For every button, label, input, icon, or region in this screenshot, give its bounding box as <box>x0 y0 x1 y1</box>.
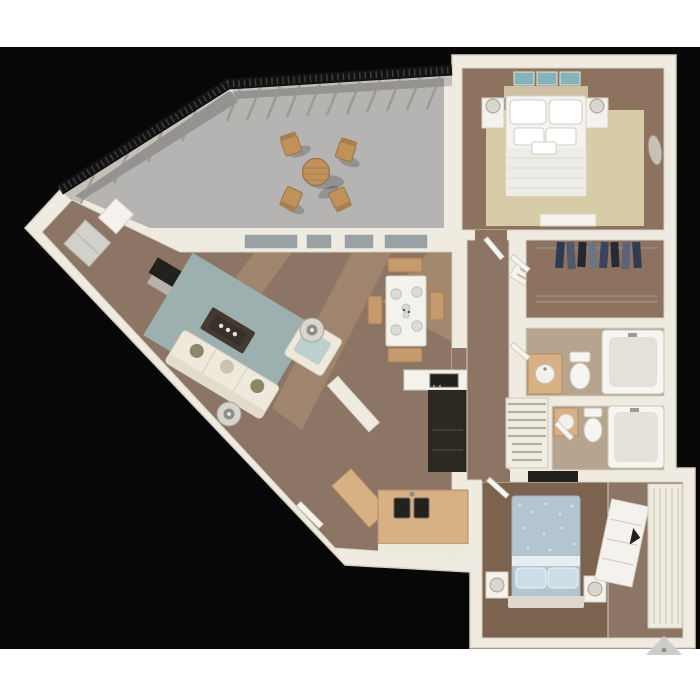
pillow <box>549 100 582 124</box>
pillow <box>510 100 546 124</box>
top-margin <box>0 0 700 47</box>
wardrobe <box>648 484 682 628</box>
walk-in-closet <box>510 240 664 318</box>
kitchen-sink-right <box>414 498 429 518</box>
side-table-lamp <box>300 318 324 342</box>
tub-faucet <box>630 408 639 412</box>
bench <box>540 214 596 226</box>
staircase <box>506 398 548 468</box>
tub-faucet <box>628 333 637 337</box>
bathtub <box>602 330 664 394</box>
table-lamp <box>590 99 604 113</box>
table-lamp <box>588 582 602 596</box>
table-lamp <box>486 99 500 113</box>
glass-pane <box>384 234 428 249</box>
dining-bench <box>388 258 422 272</box>
pillow <box>548 568 578 588</box>
bed-1 <box>506 96 586 196</box>
bedroom1-doorway <box>475 230 507 242</box>
side-table-lamp <box>217 402 241 426</box>
glass-pane <box>306 234 332 249</box>
dining-bench <box>388 348 422 362</box>
hallway-floor <box>467 240 509 480</box>
headboard <box>508 596 584 608</box>
toilet <box>570 352 590 389</box>
faucet <box>410 492 415 497</box>
bathroom-1 <box>510 328 664 396</box>
bathtub <box>608 406 664 468</box>
dining-chair <box>430 292 444 320</box>
vanity-sink <box>536 365 555 384</box>
floor-plan-image <box>0 0 700 700</box>
floor-plan-canvas <box>0 0 700 700</box>
bedroom2-doorway <box>482 470 510 482</box>
tv <box>528 471 578 482</box>
duvet <box>506 148 586 196</box>
dark-cabinet-run <box>428 390 467 472</box>
bedroom-2 <box>482 470 683 638</box>
sheet-fold <box>512 556 580 566</box>
glass-pane <box>344 234 374 249</box>
pillow <box>516 568 546 588</box>
bottom-margin <box>0 649 700 700</box>
glass-pane <box>244 234 298 249</box>
round-patio-table <box>303 159 330 186</box>
folded-blanket <box>532 142 556 154</box>
triangle-dot <box>662 648 667 653</box>
bed-2 <box>508 496 584 608</box>
toilet <box>584 408 602 442</box>
counter-front <box>378 544 468 556</box>
kitchen-sink-left <box>394 498 410 518</box>
dining-chair <box>368 296 382 324</box>
bathroom-2 <box>552 406 664 470</box>
faucet <box>543 367 546 370</box>
table-lamp <box>490 578 504 592</box>
teal-wall-art <box>514 72 580 85</box>
